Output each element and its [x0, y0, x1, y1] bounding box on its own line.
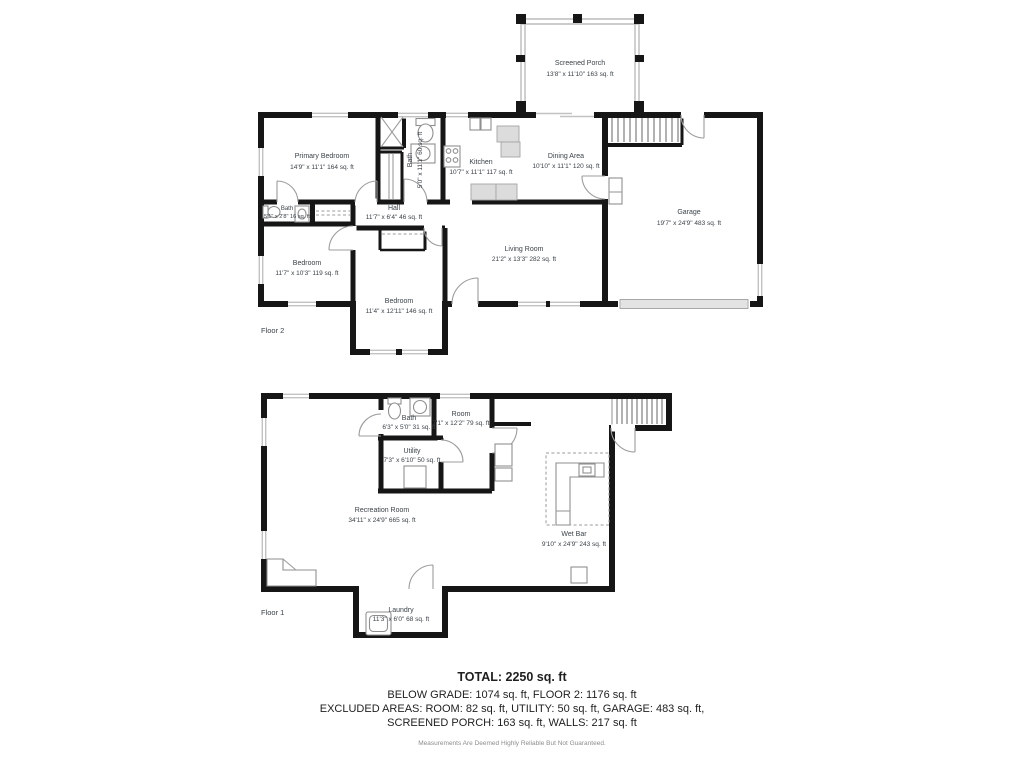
room-dims-screened-porch: 13'8" x 11'10" 163 sq. ft — [546, 71, 614, 78]
room-dims-garage: 19'7" x 24'9" 483 sq. ft — [657, 220, 721, 227]
fixture-box — [571, 567, 587, 583]
hvac-icon — [495, 444, 512, 466]
kitchen-sink-icon — [470, 118, 480, 130]
room-dims-dining-area: 10'10" x 11'1" 120 sq. ft — [532, 163, 600, 170]
garage-door — [620, 300, 748, 309]
floor2-stairs-icon — [612, 118, 678, 142]
furnace-icon — [609, 178, 622, 204]
room-label-living-room: Living Room — [505, 246, 544, 253]
room-dims-laundry: 11'3" x 6'0" 68 sq. ft — [373, 616, 430, 623]
summary-block: TOTAL: 2250 sq. ft BELOW GRADE: 1074 sq.… — [0, 670, 1024, 747]
room-dims-recreation-room: 34'11" x 24'9" 665 sq. ft — [348, 517, 416, 524]
summary-line-excluded-2: SCREENED PORCH: 163 sq. ft, WALLS: 217 s… — [0, 716, 1024, 730]
room-dims-wet-bar: 9'10" x 24'9" 243 sq. ft — [542, 541, 606, 548]
room-dims-bath-small: 5'1" x 2'8" 16 sq. ft — [264, 214, 310, 220]
room-dims-bath: 6'3" x 5'0" 31 sq. ft — [382, 424, 436, 431]
room-label-utility: Utility — [403, 448, 421, 455]
floor2-plan: Screened Porch 13'8" x 11'10" 163 sq. ft… — [258, 14, 764, 356]
room-label-screened-porch: Screened Porch — [555, 60, 605, 67]
room-dims-kitchen: 10'7" x 11'1" 117 sq. ft — [449, 169, 512, 176]
floor1-fixtures — [267, 398, 609, 635]
room-dims-hall: 11'7" x 6'4" 46 sq. ft — [366, 214, 423, 221]
floorplan-svg: Screened Porch 13'8" x 11'10" 163 sq. ft… — [0, 0, 1024, 768]
room-label-hall: Hall — [388, 205, 401, 212]
summary-line-excluded: EXCLUDED AREAS: ROOM: 82 sq. ft, UTILITY… — [0, 702, 1024, 716]
room-dims-utility: 7'3" x 6'10" 50 sq. ft — [384, 457, 441, 464]
room-dims-bath-upper: 5'0" x 11'1" 60 sq. ft — [417, 132, 424, 189]
room-dims-bedroom-lower: 11'4" x 12'11" 146 sq. ft — [366, 308, 433, 315]
floor1-plan: Bath 6'3" x 5'0" 31 sq. ft Room 7'1" x 1… — [261, 393, 670, 636]
room-label-bath-small: Bath — [281, 206, 293, 212]
room-label-primary-bedroom: Primary Bedroom — [295, 153, 350, 160]
room-label-wet-bar: Wet Bar — [561, 531, 587, 538]
room-label-room: Room — [452, 411, 471, 418]
room-label-bath-upper: Bath — [407, 153, 414, 168]
summary-disclaimer: Measurements Are Deemed Highly Reliable … — [0, 740, 1024, 747]
room-dims-primary-bedroom: 14'9" x 11'1" 164 sq. ft — [290, 164, 354, 171]
island-icon — [471, 184, 496, 200]
room-label-bedroom-left: Bedroom — [293, 260, 322, 267]
summary-total: TOTAL: 2250 sq. ft — [0, 670, 1024, 684]
floor1-walls — [264, 396, 669, 635]
floor1-stairs-icon — [617, 399, 662, 424]
closet-sliding-door — [316, 211, 350, 215]
floor2-doors — [277, 112, 704, 308]
room-label-bedroom-lower: Bedroom — [385, 298, 414, 305]
floor2-label: Floor 2 — [261, 326, 284, 335]
corner-counter — [267, 559, 316, 586]
water-heater-icon — [404, 466, 426, 488]
shaft-lines — [389, 154, 393, 199]
room-dims-bedroom-left: 11'7" x 10'3" 119 sq. ft — [275, 270, 338, 277]
room-label-recreation-room: Recreation Room — [355, 507, 410, 514]
floor1-label: Floor 1 — [261, 608, 284, 617]
room-label-bath: Bath — [402, 415, 417, 422]
room-label-garage: Garage — [677, 209, 700, 216]
floorplan-page: Screened Porch 13'8" x 11'10" 163 sq. ft… — [0, 0, 1024, 768]
room-label-kitchen: Kitchen — [469, 159, 492, 166]
room-dims-room: 7'1" x 12'2" 79 sq. ft — [433, 420, 490, 427]
counter-icon — [497, 126, 519, 142]
room-label-dining-area: Dining Area — [548, 153, 584, 160]
summary-line-grades: BELOW GRADE: 1074 sq. ft, FLOOR 2: 1176 … — [0, 688, 1024, 702]
room-label-laundry: Laundry — [388, 607, 414, 614]
room-dims-living-room: 21'2" x 13'3" 282 sq. ft — [492, 256, 556, 263]
closet-x-icon — [381, 117, 403, 147]
